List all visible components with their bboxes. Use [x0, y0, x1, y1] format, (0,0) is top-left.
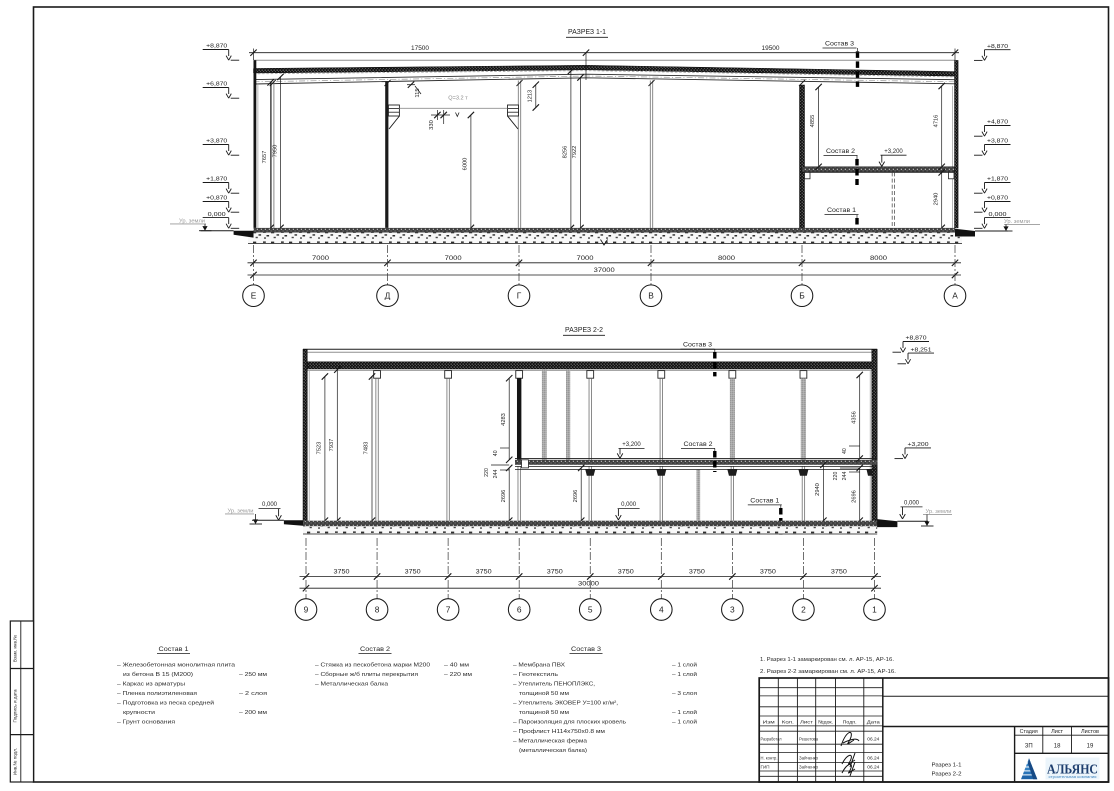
svg-text:Подпись и дата: Подпись и дата — [13, 689, 18, 722]
svg-text:18: 18 — [1054, 744, 1061, 750]
svg-text:ЗП: ЗП — [1025, 744, 1033, 750]
svg-text:+8,870: +8,870 — [987, 44, 1009, 50]
svg-text:+8,251: +8,251 — [911, 347, 932, 353]
svg-text:– 3 слоя: – 3 слоя — [672, 691, 697, 697]
svg-text:ГИП: ГИП — [761, 764, 770, 769]
svg-text:7483: 7483 — [364, 442, 370, 455]
svg-text:Стадия: Стадия — [1020, 729, 1038, 735]
svg-text:Q=3.2 т: Q=3.2 т — [448, 96, 468, 102]
svg-text:7950: 7950 — [272, 145, 278, 158]
svg-text:Инв.№ подл.: Инв.№ подл. — [13, 748, 18, 775]
svg-text:Решетова: Решетова — [799, 737, 818, 742]
svg-text:40: 40 — [493, 450, 499, 456]
svg-text:– 40 мм: – 40 мм — [444, 663, 469, 669]
svg-text:8: 8 — [375, 605, 380, 615]
svg-text:Ур. земли: Ур. земли — [228, 508, 254, 514]
svg-text:+6,870: +6,870 — [206, 82, 228, 88]
svg-text:+8,870: +8,870 — [906, 336, 928, 342]
svg-text:из бетона В 15 (М200): из бетона В 15 (М200) — [123, 672, 193, 678]
svg-text:3750: 3750 — [405, 569, 422, 576]
svg-text:244: 244 — [493, 470, 499, 479]
svg-text:5: 5 — [588, 605, 593, 615]
svg-text:+1,870: +1,870 — [987, 177, 1009, 183]
svg-text:244: 244 — [842, 472, 848, 481]
svg-text:Кол.: Кол. — [782, 719, 794, 725]
svg-text:– 250 мм: – 250 мм — [239, 672, 267, 678]
svg-text:– Стяжка из пескобетона марки: – Стяжка из пескобетона марки М200 — [315, 663, 430, 669]
svg-text:2. Разрез 2-2 замаркирован см.: 2. Разрез 2-2 замаркирован см. л. АР-15,… — [760, 669, 897, 675]
svg-text:Состав 1: Состав 1 — [827, 207, 857, 214]
svg-text:Лист: Лист — [800, 719, 814, 725]
svg-text:7657: 7657 — [262, 151, 268, 164]
svg-text:1. Разрез 1-1 замаркирован см.: 1. Разрез 1-1 замаркирован см. л. АР-15,… — [760, 657, 895, 663]
svg-text:– 2 слоя: – 2 слоя — [239, 691, 267, 697]
svg-text:7523: 7523 — [317, 442, 323, 455]
svg-text:Состав 3: Состав 3 — [683, 342, 713, 349]
svg-text:Лист: Лист — [1051, 729, 1064, 735]
svg-text:+3,200: +3,200 — [908, 442, 930, 448]
svg-text:7: 7 — [446, 605, 451, 615]
svg-text:– Мембрана ПВХ: – Мембрана ПВХ — [513, 663, 566, 669]
svg-text:строительная компания: строительная компания — [1049, 775, 1097, 779]
svg-text:4716: 4716 — [933, 115, 939, 128]
svg-text:– Подготовка из песка средней: – Подготовка из песка средней — [117, 700, 214, 707]
svg-text:– Грунт основания: – Грунт основания — [117, 720, 175, 726]
svg-text:0,000: 0,000 — [989, 212, 1008, 218]
svg-text:6: 6 — [517, 605, 522, 615]
svg-text:2696: 2696 — [573, 490, 579, 503]
svg-text:– Профлист Н114х750х0.8 мм: – Профлист Н114х750х0.8 мм — [513, 729, 605, 735]
svg-text:3750: 3750 — [547, 569, 564, 576]
svg-text:РАЗРЕЗ 2-2: РАЗРЕЗ 2-2 — [565, 325, 603, 334]
svg-text:– 200 мм: – 200 мм — [239, 710, 267, 716]
svg-text:3750: 3750 — [334, 569, 351, 576]
svg-text:4: 4 — [659, 605, 664, 615]
svg-text:0,000: 0,000 — [208, 212, 227, 218]
svg-text:+0,870: +0,870 — [206, 196, 228, 202]
svg-text:2696: 2696 — [501, 490, 507, 503]
svg-text:3: 3 — [730, 605, 735, 615]
svg-text:3750: 3750 — [618, 569, 635, 576]
svg-text:0,000: 0,000 — [262, 502, 278, 508]
svg-text:– Сборные ж/б плиты перекрытия: – Сборные ж/б плиты перекрытия — [315, 672, 418, 678]
svg-text:3750: 3750 — [689, 569, 706, 576]
svg-text:0,000: 0,000 — [621, 502, 637, 508]
svg-text:– Утеплитель ПЕНОПЛЭКС,: – Утеплитель ПЕНОПЛЭКС, — [513, 682, 595, 688]
svg-text:9: 9 — [304, 605, 309, 615]
svg-text:06.24: 06.24 — [867, 764, 879, 769]
svg-text:+3,200: +3,200 — [884, 149, 903, 155]
svg-text:19: 19 — [1087, 744, 1094, 750]
svg-text:1213: 1213 — [528, 90, 534, 103]
svg-text:8256: 8256 — [563, 146, 569, 159]
svg-text:– Железобетонная монолитная п: – Железобетонная монолитная плита — [117, 663, 235, 669]
svg-text:30000: 30000 — [578, 580, 600, 587]
svg-text:– 1 слой: – 1 слой — [672, 671, 697, 678]
svg-text:2940: 2940 — [933, 193, 939, 206]
svg-text:0,000: 0,000 — [904, 501, 920, 507]
svg-text:– Металлическая балка: – Металлическая балка — [315, 682, 388, 688]
svg-text:7000: 7000 — [445, 255, 463, 262]
svg-text:7937: 7937 — [329, 439, 335, 452]
svg-text:крупности: крупности — [123, 710, 155, 716]
svg-text:2696: 2696 — [851, 490, 857, 503]
svg-text:+3,870: +3,870 — [206, 139, 228, 145]
svg-text:40: 40 — [842, 448, 848, 454]
svg-text:– 1 слой: – 1 слой — [672, 662, 697, 669]
svg-text:8000: 8000 — [718, 255, 736, 262]
svg-text:Разрез 1-1: Разрез 1-1 — [932, 763, 962, 769]
svg-text:– 220 мм: – 220 мм — [444, 672, 472, 678]
svg-text:115: 115 — [415, 88, 421, 97]
svg-text:+4,870: +4,870 — [987, 120, 1009, 126]
svg-text:Зайченко: Зайченко — [799, 763, 818, 769]
svg-text:Ур. земли: Ур. земли — [179, 218, 205, 224]
svg-text:В: В — [648, 291, 654, 301]
svg-text:– Пленка полиэтиленовая: – Пленка полиэтиленовая — [117, 691, 197, 697]
svg-text:Состав 2: Состав 2 — [360, 646, 390, 653]
svg-text:7922: 7922 — [572, 146, 578, 159]
svg-text:– 1 слой: – 1 слой — [672, 709, 697, 716]
svg-text:Г: Г — [517, 291, 522, 301]
svg-text:3750: 3750 — [831, 569, 848, 576]
svg-text:Ур. земли: Ур. земли — [926, 509, 952, 515]
svg-text:7000: 7000 — [577, 255, 595, 262]
svg-text:– Пароизоляция для плоских кро: – Пароизоляция для плоских кровель — [513, 720, 626, 726]
svg-text:6000: 6000 — [462, 158, 468, 171]
svg-text:Ур. земли: Ур. земли — [1004, 219, 1030, 225]
svg-text:– 1 слой: – 1 слой — [672, 719, 697, 726]
svg-text:Изм: Изм — [763, 719, 776, 725]
svg-text:37000: 37000 — [594, 267, 616, 274]
svg-text:Состав 3: Состав 3 — [825, 40, 855, 47]
svg-text:17500: 17500 — [411, 45, 430, 52]
svg-text:220: 220 — [833, 472, 839, 481]
svg-text:3750: 3750 — [476, 569, 493, 576]
svg-text:1: 1 — [872, 605, 877, 615]
svg-text:Разработал: Разработал — [761, 737, 782, 742]
svg-text:19500: 19500 — [762, 45, 781, 52]
svg-text:+1,870: +1,870 — [206, 177, 228, 183]
svg-text:06.24: 06.24 — [867, 756, 879, 761]
svg-text:+3,200: +3,200 — [622, 442, 641, 448]
svg-text:№док.: №док. — [818, 719, 833, 725]
svg-text:Д: Д — [385, 291, 391, 301]
svg-text:+3,870: +3,870 — [987, 139, 1009, 145]
svg-text:Б: Б — [799, 291, 805, 301]
svg-text:– Каркас из арматуры: – Каркас из арматуры — [117, 682, 185, 688]
svg-text:(металлическая балка): (металлическая балка) — [519, 748, 587, 754]
svg-text:8000: 8000 — [870, 255, 888, 262]
svg-text:Состав 1: Состав 1 — [750, 497, 780, 504]
svg-text:Подп.: Подп. — [843, 719, 857, 725]
svg-text:толщиной 50 мм: толщиной 50 мм — [519, 709, 569, 716]
svg-text:– Утеплитель ЭКОВЕР У=100 кг/м: – Утеплитель ЭКОВЕР У=100 кг/м², — [513, 701, 618, 707]
svg-text:7000: 7000 — [312, 255, 330, 262]
svg-text:– Геотекстиль: – Геотекстиль — [513, 672, 558, 678]
svg-text:+0,870: +0,870 — [987, 196, 1009, 202]
svg-text:Взам. инв.№: Взам. инв.№ — [13, 635, 18, 662]
svg-text:Состав 2: Состав 2 — [684, 441, 714, 448]
svg-text:толщиной 50 мм: толщиной 50 мм — [519, 690, 569, 697]
svg-text:Дата: Дата — [867, 719, 880, 725]
svg-text:Н. контр.: Н. контр. — [761, 756, 778, 761]
svg-text:Е: Е — [251, 291, 257, 301]
svg-text:2: 2 — [801, 605, 806, 615]
svg-text:А: А — [952, 291, 958, 301]
svg-text:4283: 4283 — [501, 413, 507, 426]
svg-text:+8,870: +8,870 — [206, 44, 228, 50]
svg-text:Разрез 2-2: Разрез 2-2 — [932, 772, 962, 778]
svg-text:06.24: 06.24 — [867, 737, 879, 742]
svg-text:220: 220 — [484, 468, 490, 477]
svg-text:Состав 1: Состав 1 — [159, 646, 189, 653]
svg-text:3750: 3750 — [760, 569, 777, 576]
svg-text:РАЗРЕЗ 1-1: РАЗРЕЗ 1-1 — [568, 27, 606, 36]
svg-text:– Металлическая ферма: – Металлическая ферма — [513, 739, 587, 745]
svg-text:2940: 2940 — [815, 483, 821, 496]
svg-text:Состав 3: Состав 3 — [571, 646, 601, 653]
svg-text:Зайченко: Зайченко — [799, 755, 818, 761]
svg-text:4356: 4356 — [851, 411, 857, 424]
svg-text:330: 330 — [429, 120, 435, 130]
svg-text:Состав 2: Состав 2 — [826, 148, 856, 155]
svg-text:4855: 4855 — [810, 115, 816, 128]
svg-text:Листов: Листов — [1081, 729, 1099, 735]
